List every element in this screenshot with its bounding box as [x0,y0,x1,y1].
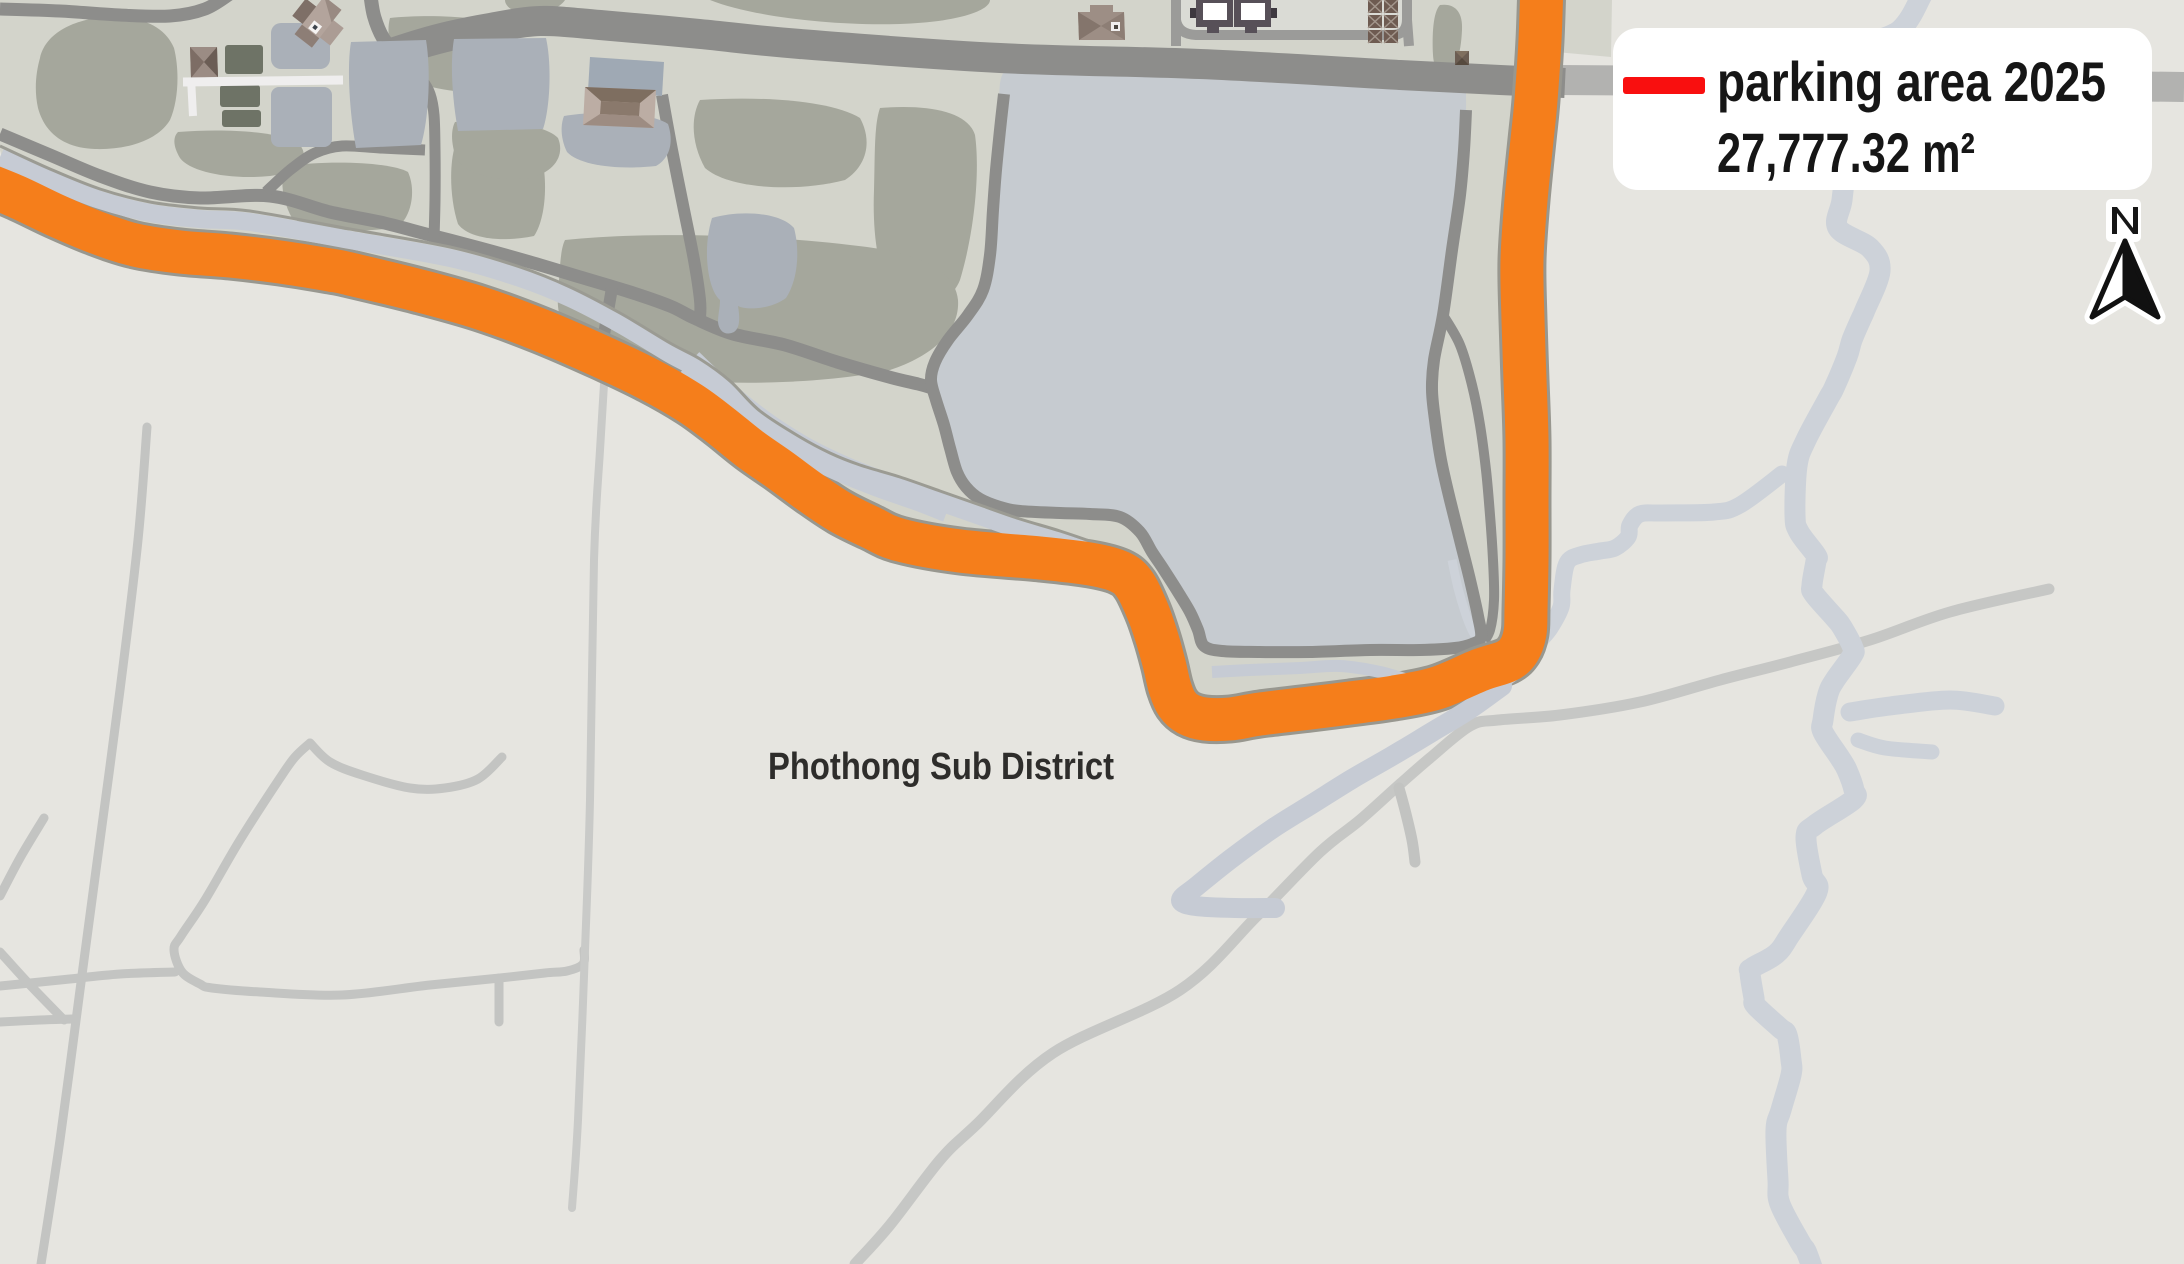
svg-text:parking area 2025: parking area 2025 [1717,50,2106,113]
svg-text:Phothong Sub District: Phothong Sub District [768,746,1114,788]
svg-text:27,777.32 m²: 27,777.32 m² [1717,121,1975,184]
